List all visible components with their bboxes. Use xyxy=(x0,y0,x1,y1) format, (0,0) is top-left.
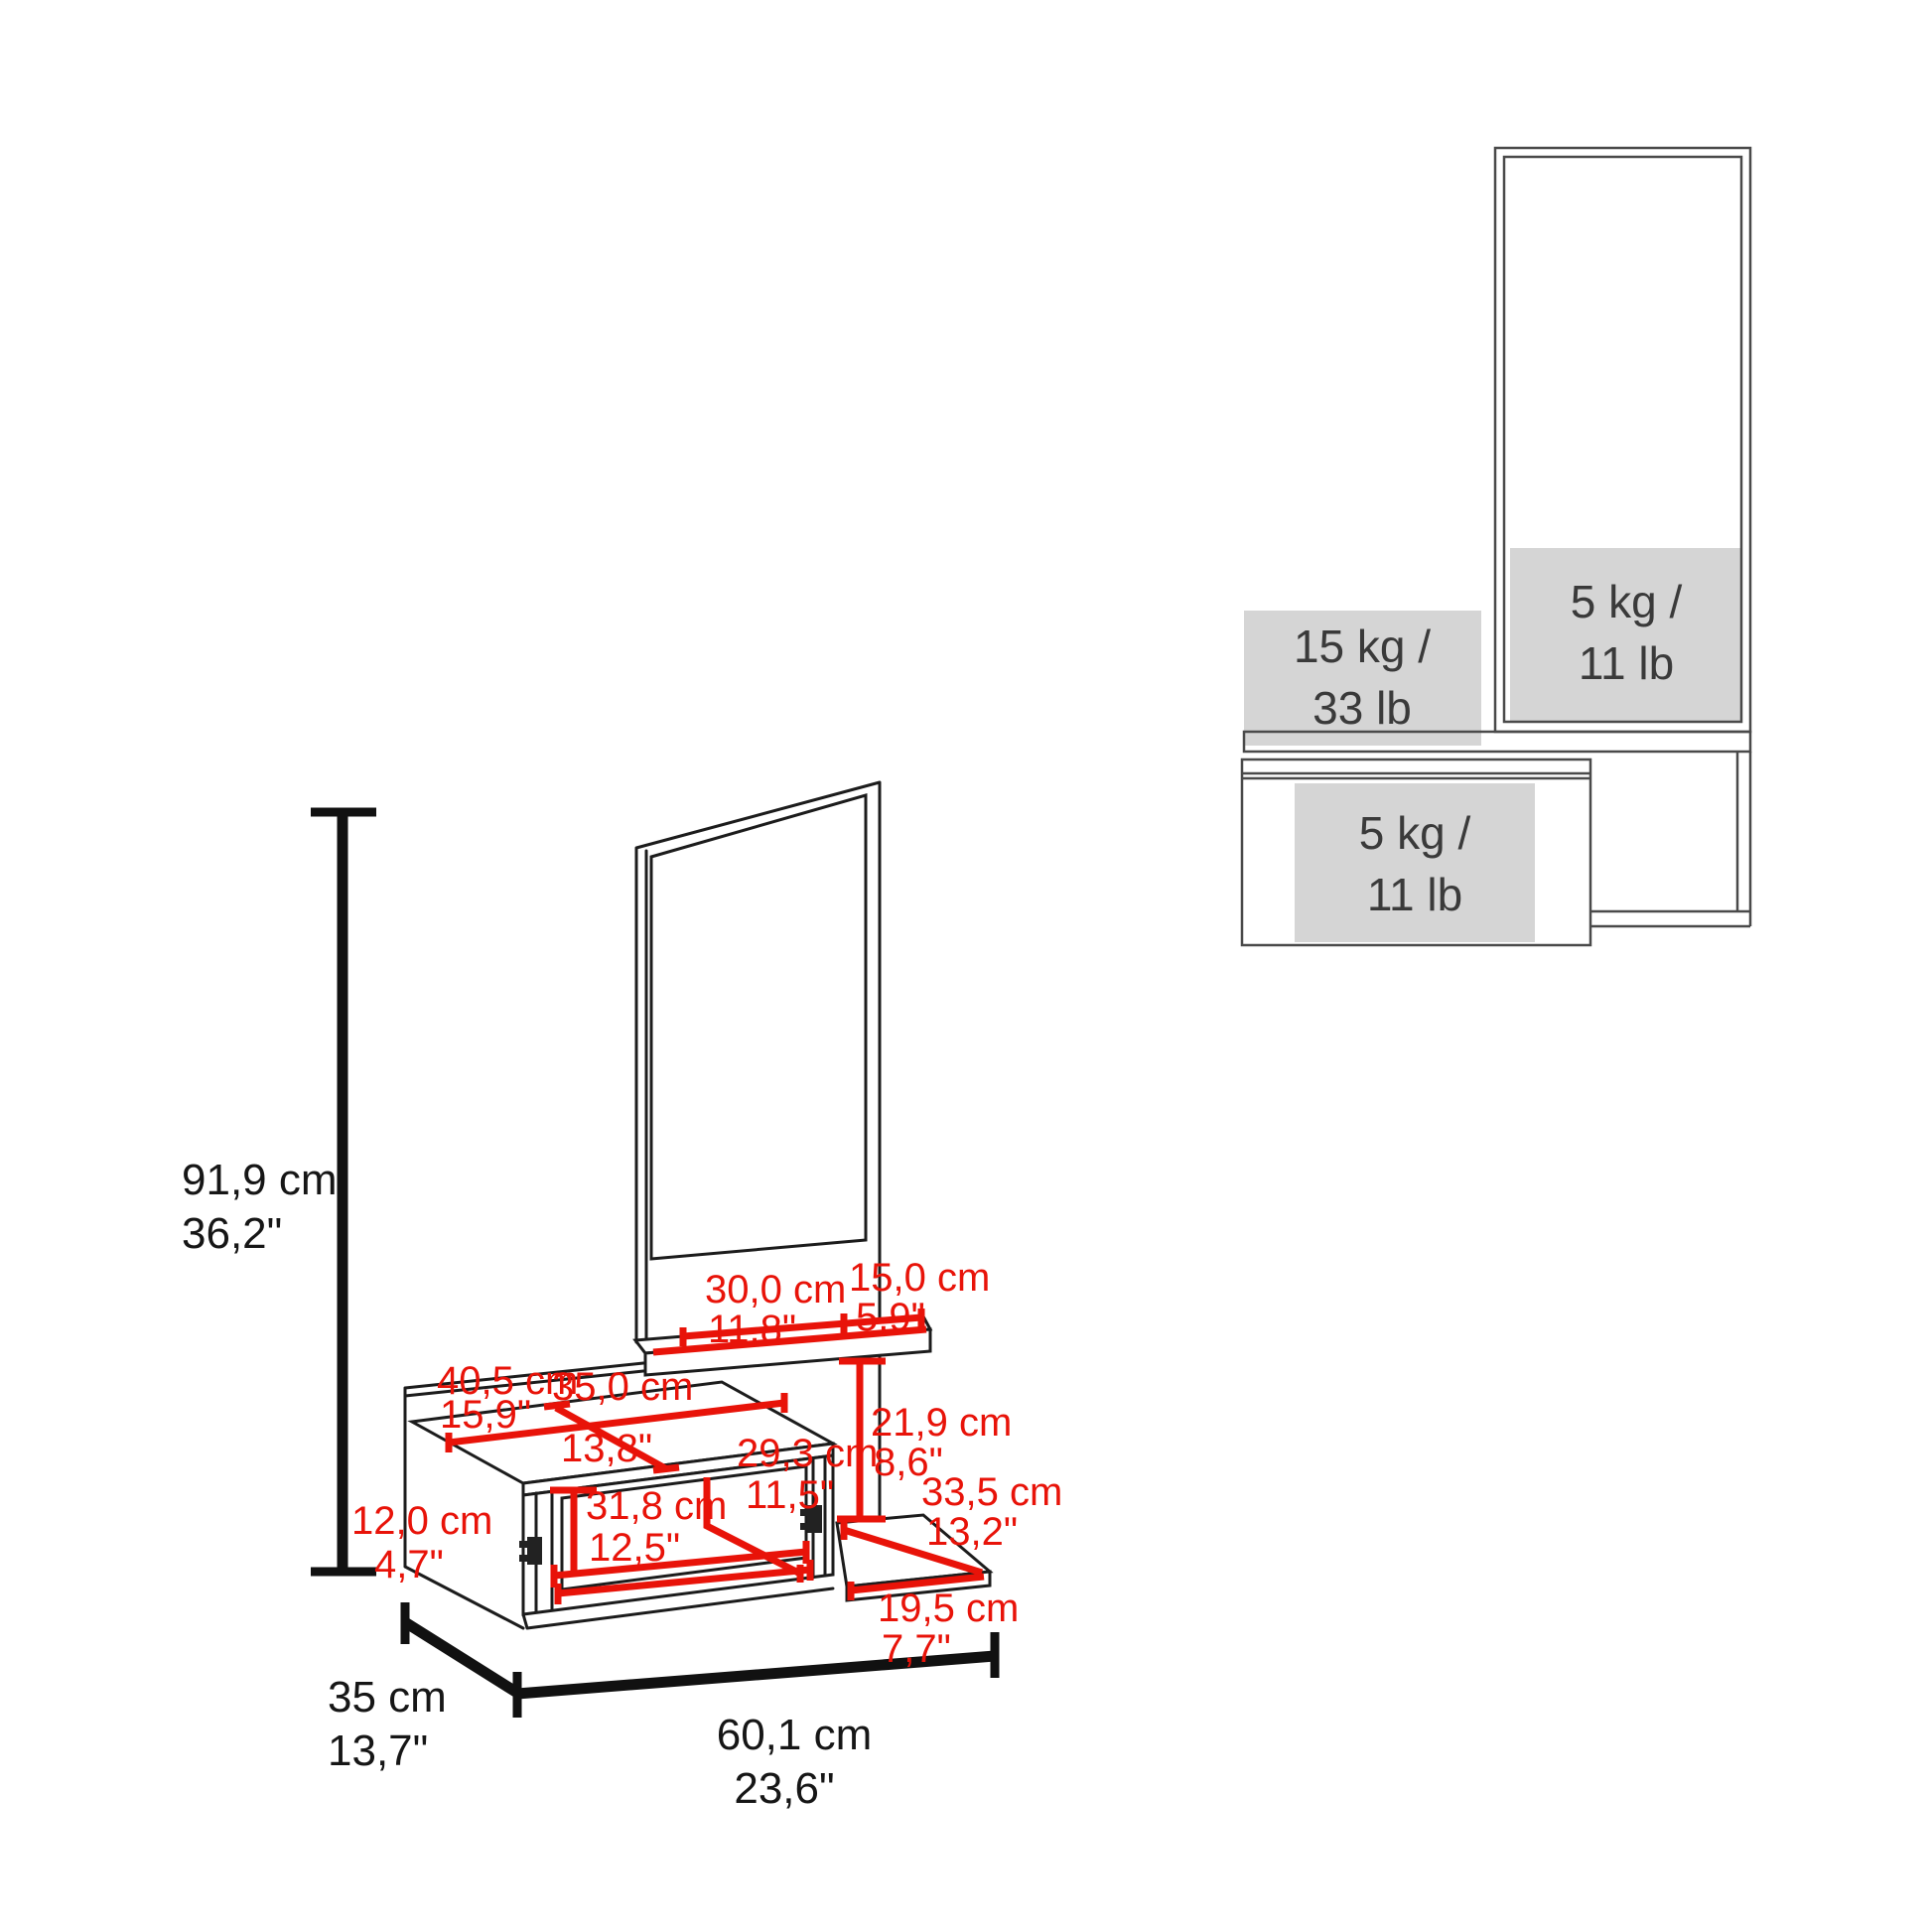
dim-29-3-in: 11,5" xyxy=(746,1473,834,1517)
capacity-zone-mirror-shelf xyxy=(1510,548,1741,721)
height-in-label: 36,2" xyxy=(182,1209,282,1258)
width-cm-label: 60,1 cm xyxy=(717,1711,873,1759)
hinge-left-tooth-1 xyxy=(519,1541,527,1548)
cabinet-capacity-line2: 11 lb xyxy=(1367,869,1462,920)
furniture-dimension-diagram: 30,0 cm 11,8" 15,0 cm 5,9" 40,5 cm 15,9"… xyxy=(0,0,1932,1932)
top-35-0-tick-front xyxy=(653,1467,679,1470)
wall-shelf-capacity-line2: 33 lb xyxy=(1312,682,1412,734)
diagram-canvas: 30,0 cm 11,8" 15,0 cm 5,9" 40,5 cm 15,9"… xyxy=(0,0,1932,1932)
dim-15-in: 5,9" xyxy=(856,1296,925,1339)
dim-31-8-cm: 31,8 cm xyxy=(586,1484,727,1528)
mirror-glass xyxy=(651,795,866,1259)
dim-30-cm: 30,0 cm xyxy=(705,1268,846,1311)
dim-15-cm: 15,0 cm xyxy=(849,1256,990,1300)
mirror-shelf-capacity-line1: 5 kg / xyxy=(1571,576,1683,627)
height-cm-label: 91,9 cm xyxy=(182,1156,338,1204)
depth-in-label: 13,7" xyxy=(328,1726,428,1775)
dim-29-3-cm: 29,3 cm xyxy=(737,1432,878,1475)
cabinet-capacity-line1: 5 kg / xyxy=(1359,807,1471,859)
dim-12-cm: 12,0 cm xyxy=(351,1499,492,1543)
dim-33-5-cm: 33,5 cm xyxy=(921,1470,1062,1514)
dim-19-5-cm: 19,5 cm xyxy=(878,1587,1019,1630)
dim-19-5-in: 7,7" xyxy=(882,1627,951,1671)
depth-cm-label: 35 cm xyxy=(328,1673,447,1722)
load-capacity-view: 5 kg / 11 lb 15 kg / 33 lb 5 kg / 11 lb xyxy=(1242,148,1750,945)
mirror-shelf-capacity-line2: 11 lb xyxy=(1579,637,1674,689)
dim-33-5-in: 13,2" xyxy=(926,1510,1018,1554)
dim-21-9-cm: 21,9 cm xyxy=(871,1401,1012,1445)
dim-30-in: 11,8" xyxy=(708,1308,796,1351)
hinge-left-icon xyxy=(527,1537,542,1565)
dim-12-in: 4,7" xyxy=(374,1543,444,1587)
hinge-right-tooth-2 xyxy=(800,1523,808,1530)
dim-40-5-in: 15,9" xyxy=(440,1393,531,1437)
dim-31-8-in: 12,5" xyxy=(589,1526,680,1570)
hinge-left-tooth-2 xyxy=(519,1555,527,1562)
dim-35-in: 13,8" xyxy=(561,1427,652,1470)
dim-35-cm: 35,0 cm xyxy=(552,1365,693,1409)
wall-shelf-capacity-line1: 15 kg / xyxy=(1294,621,1431,672)
width-in-label: 23,6" xyxy=(734,1764,834,1813)
